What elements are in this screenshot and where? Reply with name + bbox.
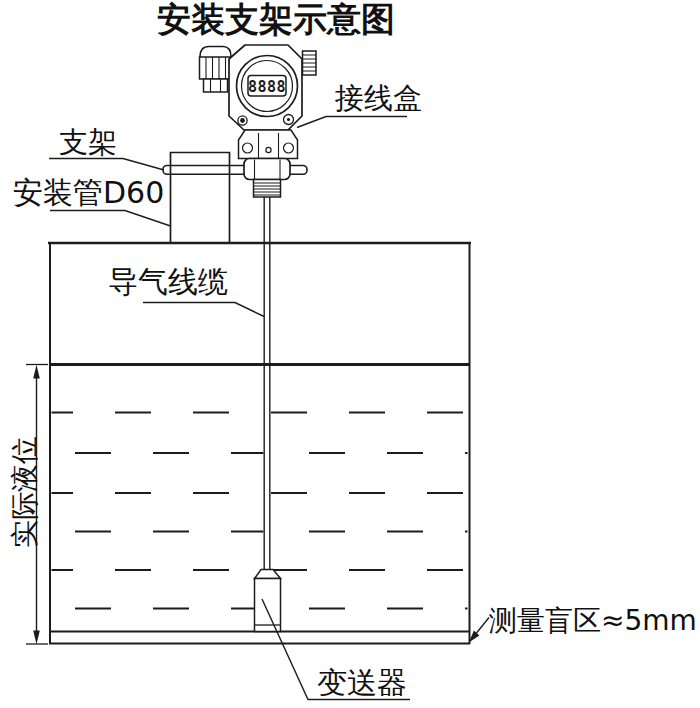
threaded-nipple-drawing [254, 180, 281, 198]
label-blind-zone: 测量盲区≈5mm [489, 606, 697, 637]
label-bracket: 支架 [59, 127, 117, 159]
vent-plug-drawing [303, 51, 317, 75]
probe-drawing [255, 570, 281, 632]
label-junction-box: 接线盒 [335, 83, 422, 115]
label-probe: 变送器 [317, 666, 407, 699]
air-cable-drawing [263, 197, 270, 571]
leader-junction-box [297, 117, 407, 128]
label-mounting-pipe: 安装管D60 [13, 176, 164, 209]
neck-flange-drawing [239, 130, 298, 159]
leader-air-cable [143, 303, 264, 317]
cable-gland-drawing [200, 47, 232, 93]
leader-bracket [49, 159, 164, 171]
display-digits: 8888 [248, 78, 286, 96]
leader-mounting-pipe [50, 211, 171, 227]
hex-nut-drawing [244, 159, 290, 180]
display-window: 8888 [248, 76, 286, 97]
label-air-cable: 导气线缆 [108, 265, 228, 298]
label-actual-level: 实际液位 [10, 430, 40, 555]
diagram-title: 安装支架示意图 [157, 1, 395, 38]
diagram-canvas: 8888 [0, 0, 700, 708]
blind-zone-arrow [469, 618, 489, 643]
